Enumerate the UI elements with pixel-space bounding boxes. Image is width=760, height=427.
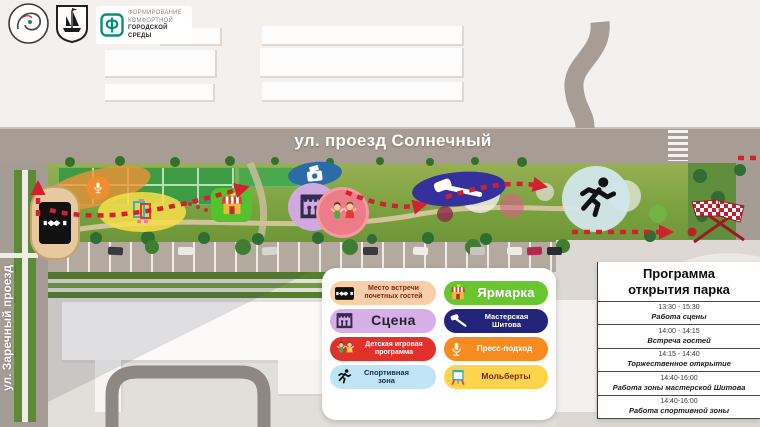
program-event: Работа спортивной зоны [598, 406, 760, 415]
legend-item-easels: Мольберты [444, 365, 548, 389]
logo-text: ФОРМИРОВАНИЕ КОМФОРТНОЙ ГОРОДСКОЙ СРЕДЫ [128, 10, 188, 40]
legend-label: Пресс-подход [464, 345, 548, 354]
program-panel: Программа открытия парка 13:30 - 15:30 Р… [597, 262, 760, 419]
mic-icon [449, 341, 464, 358]
legend-label: Спортивная зона [353, 369, 436, 386]
legend-label: Сцена [354, 313, 436, 329]
legend-item-guests: Место встречи почетных гостей [330, 281, 436, 305]
program-time: 14:40-16:00 [598, 398, 760, 405]
program-event: Встреча гостей [598, 336, 760, 345]
legend-item-press: Пресс-подход [444, 337, 548, 361]
legend-item-fair: Ярмарка [444, 281, 548, 305]
program-row: 14:40-16:00 Работа спортивной зоны [598, 395, 760, 419]
comfort-environment-logo: ФОРМИРОВАНИЕ КОМФОРТНОЙ ГОРОДСКОЙ СРЕДЫ [96, 6, 192, 44]
legend-panel: Место встречи почетных гостей Сцена [322, 268, 556, 420]
program-event: Торжественное открытие [598, 359, 760, 368]
fair-icon [449, 284, 467, 302]
f-glyph-icon [100, 12, 124, 38]
legend-label: Место встречи почетных гостей [354, 285, 436, 301]
runner-icon [335, 368, 353, 386]
legend-label: Детская игровая программа [355, 341, 436, 357]
program-row: 13:30 - 15:30 Работа сцены [598, 301, 760, 324]
legend-label: Мольберты [467, 372, 548, 382]
kids-icon [335, 341, 355, 357]
legend-label: Ярмарка [467, 286, 548, 301]
program-time: 14:15 - 14:40 [598, 351, 760, 358]
legend-item-stage: Сцена [330, 309, 436, 333]
legend-item-sport: Спортивная зона [330, 365, 436, 389]
program-time: 14:40-16:00 [598, 375, 760, 382]
program-row: 14:15 - 14:40 Торжественное открытие [598, 348, 760, 371]
program-time: 14:00 - 14:15 [598, 328, 760, 335]
stage-icon [335, 312, 354, 330]
street-label-left: ул. Заречный проезд [0, 232, 19, 424]
easel-icon [449, 368, 467, 386]
gavel-icon [449, 313, 468, 329]
park-opening-plan: ул. проезд Солнечный ул. Заречный проезд… [0, 0, 760, 427]
coat-of-arms-logo [55, 4, 89, 44]
legend-item-workshop: Мастерская Шитова [444, 309, 548, 333]
handshake-icon [335, 287, 354, 300]
program-event: Работа зоны мастерской Шитова [598, 383, 760, 392]
program-row: 14:40-16:00 Работа зоны мастерской Шитов… [598, 371, 760, 394]
city-emblem-logo [7, 2, 50, 45]
legend-item-kids: Детская игровая программа [330, 337, 436, 361]
finish-flags-icon [688, 200, 745, 242]
program-event: Работа сцены [598, 312, 760, 321]
program-time: 13:30 - 15:30 [598, 304, 760, 311]
legend-label: Мастерская Шитова [468, 313, 548, 330]
street-label-top: ул. проезд Солнечный [253, 131, 533, 151]
program-row: 14:00 - 14:15 Встреча гостей [598, 324, 760, 347]
program-title: Программа открытия парка [598, 262, 760, 301]
